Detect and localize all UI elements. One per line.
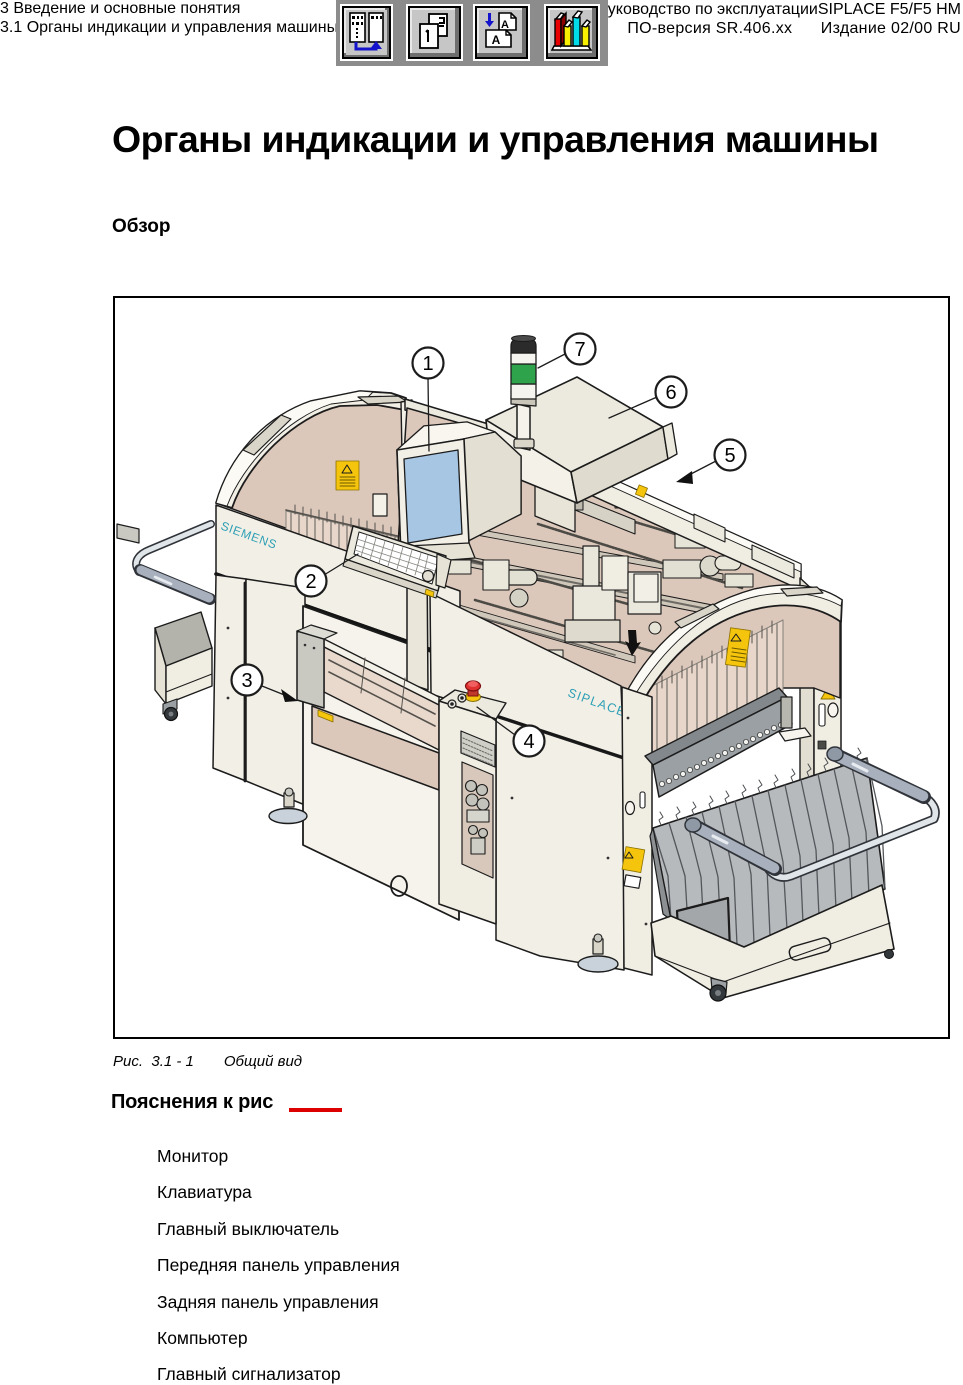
svg-text:1: 1	[422, 353, 433, 375]
svg-text:2: 2	[305, 571, 316, 593]
svg-text:4: 4	[523, 731, 534, 753]
svg-text:3: 3	[241, 670, 252, 692]
svg-text:7: 7	[574, 339, 585, 361]
svg-text:A: A	[492, 33, 501, 47]
svg-text:6: 6	[665, 382, 676, 404]
svg-text:5: 5	[724, 445, 735, 467]
